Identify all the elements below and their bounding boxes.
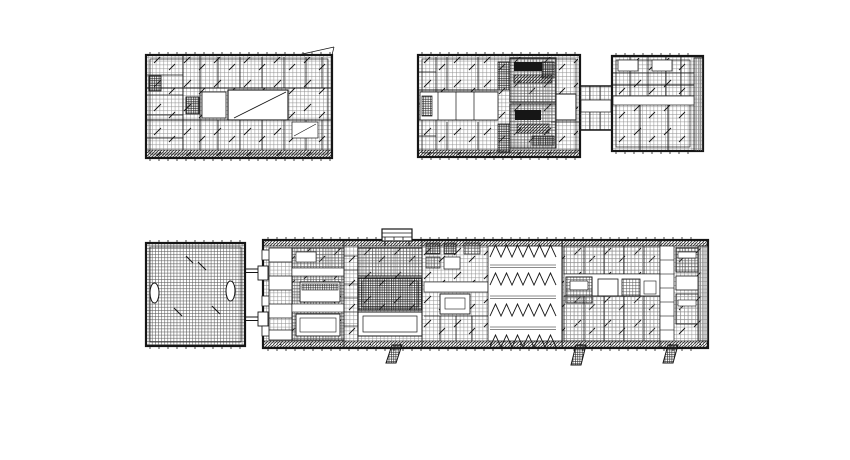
stair-core [149,76,161,91]
entry-porch [258,266,268,280]
plan-c-shape [426,257,440,268]
end-room [676,294,698,324]
corridor [292,304,344,312]
plan-c-shape [570,281,588,290]
room [598,279,618,296]
south-wall-band [146,150,332,158]
stair-core [422,96,432,116]
wall-ticks [150,52,330,55]
corridor [292,268,344,276]
plan-c-shape [464,243,480,254]
plan-c-shape [269,290,292,304]
room [618,60,638,71]
plan-a-shape [332,47,334,55]
roof-bridge [382,229,412,241]
plan-c-shape [269,318,292,330]
room [202,92,226,118]
corridor [613,96,694,105]
room [444,257,460,269]
lower-hall [358,312,422,336]
shelf-stack [498,62,510,90]
entry-porch [258,312,268,326]
office-row [564,246,660,274]
dark-bar [515,110,541,120]
upper-left-floor-plan [146,47,334,161]
stair-core [186,97,199,114]
link-corridor [581,100,611,112]
hall [296,314,340,336]
shaded-edge [698,246,708,341]
room [296,252,316,262]
wall-ticks [150,158,330,161]
oval-void [150,283,159,303]
plan-b-shape [542,62,554,78]
dark-bar [514,62,542,71]
plan-c-shape [678,300,696,306]
corridor [424,282,488,292]
room [644,281,656,294]
plan-c-shape [269,262,292,276]
upper-hall [358,248,422,276]
plan-c-shape [302,284,338,290]
north-wall-band [263,240,708,246]
end-room [676,276,698,290]
plan-b-shape [517,124,549,133]
shaded-edge [694,58,703,151]
courtyard [228,90,288,120]
shelf-stack [498,124,510,152]
plan-b-shape [532,136,554,145]
hall [440,294,470,314]
shelf-stack [444,243,456,254]
shelf-stack [426,243,440,254]
oval-void [226,281,235,301]
courtyard [556,94,576,120]
upper-right-floor-plan [418,52,703,160]
plan-c-shape [678,252,696,258]
south-wall-band [263,341,708,348]
lower-floor-plan [146,229,708,365]
floor-plans-figure [0,0,850,460]
room [622,279,640,296]
room [652,60,672,71]
auditorium-block [358,278,422,310]
office-row [564,296,660,341]
end-room [676,248,698,272]
architectural-drawing-sheet [0,0,850,460]
